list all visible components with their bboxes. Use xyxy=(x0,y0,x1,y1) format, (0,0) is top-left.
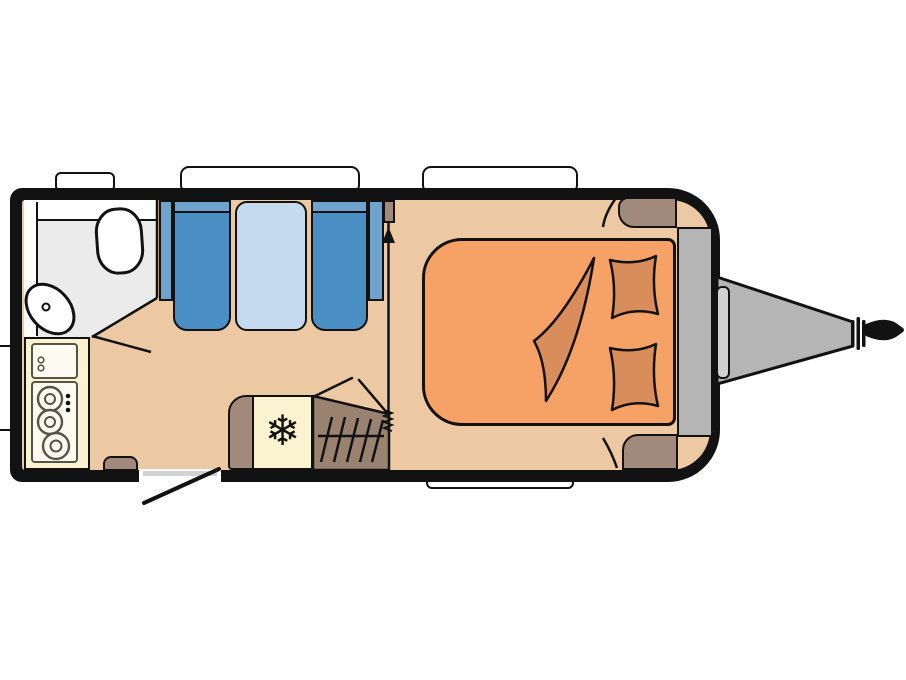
hitch-rib xyxy=(862,320,866,347)
entry-door-sill xyxy=(143,471,217,476)
hitch-rib xyxy=(851,320,855,347)
bathroom-shower-band xyxy=(24,200,158,220)
snowflake-icon: ❄ xyxy=(252,393,313,468)
front-wall-locker xyxy=(677,227,713,437)
caravan-floorplan: ❄ xyxy=(0,0,906,680)
cabinet-bottom-right xyxy=(622,434,678,470)
double-bed xyxy=(422,238,676,426)
dinette-side-panel-left xyxy=(159,200,173,301)
kitchen-hob-panel xyxy=(31,381,78,463)
partition-wall-stub xyxy=(383,200,395,223)
dinette-side-panel-right xyxy=(368,200,384,301)
bathroom-left-shelf xyxy=(24,200,37,337)
drawbar-hitch xyxy=(717,277,904,384)
cabinet-top-right xyxy=(618,197,677,228)
hitch-coupling xyxy=(863,320,904,341)
dinette-seat-left xyxy=(173,211,231,331)
fridge-side-cabinet xyxy=(228,395,254,470)
kitchen-sink-panel xyxy=(31,343,78,379)
drawbar-frame xyxy=(717,277,853,384)
dinette-table xyxy=(235,201,307,331)
hitch-rib xyxy=(857,317,861,350)
entry-step xyxy=(103,456,138,471)
dinette-seat-right xyxy=(311,211,368,331)
